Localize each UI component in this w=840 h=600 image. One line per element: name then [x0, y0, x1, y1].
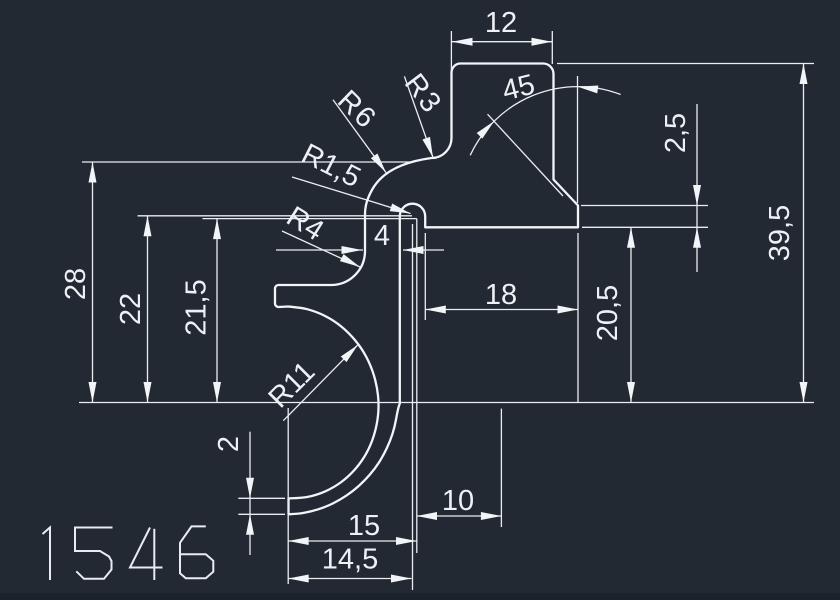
svg-text:14,5: 14,5 [322, 544, 378, 576]
svg-text:2: 2 [213, 436, 245, 452]
svg-text:28: 28 [60, 268, 92, 300]
svg-text:22: 22 [115, 293, 147, 325]
svg-text:21,5: 21,5 [181, 279, 213, 335]
svg-text:18: 18 [485, 279, 517, 311]
svg-text:20,5: 20,5 [592, 285, 624, 341]
svg-text:39,5: 39,5 [764, 205, 796, 261]
svg-text:15: 15 [348, 510, 380, 542]
svg-text:10: 10 [442, 485, 474, 517]
svg-text:4: 4 [374, 220, 390, 252]
svg-text:12: 12 [485, 7, 517, 39]
svg-text:2,5: 2,5 [660, 113, 692, 153]
